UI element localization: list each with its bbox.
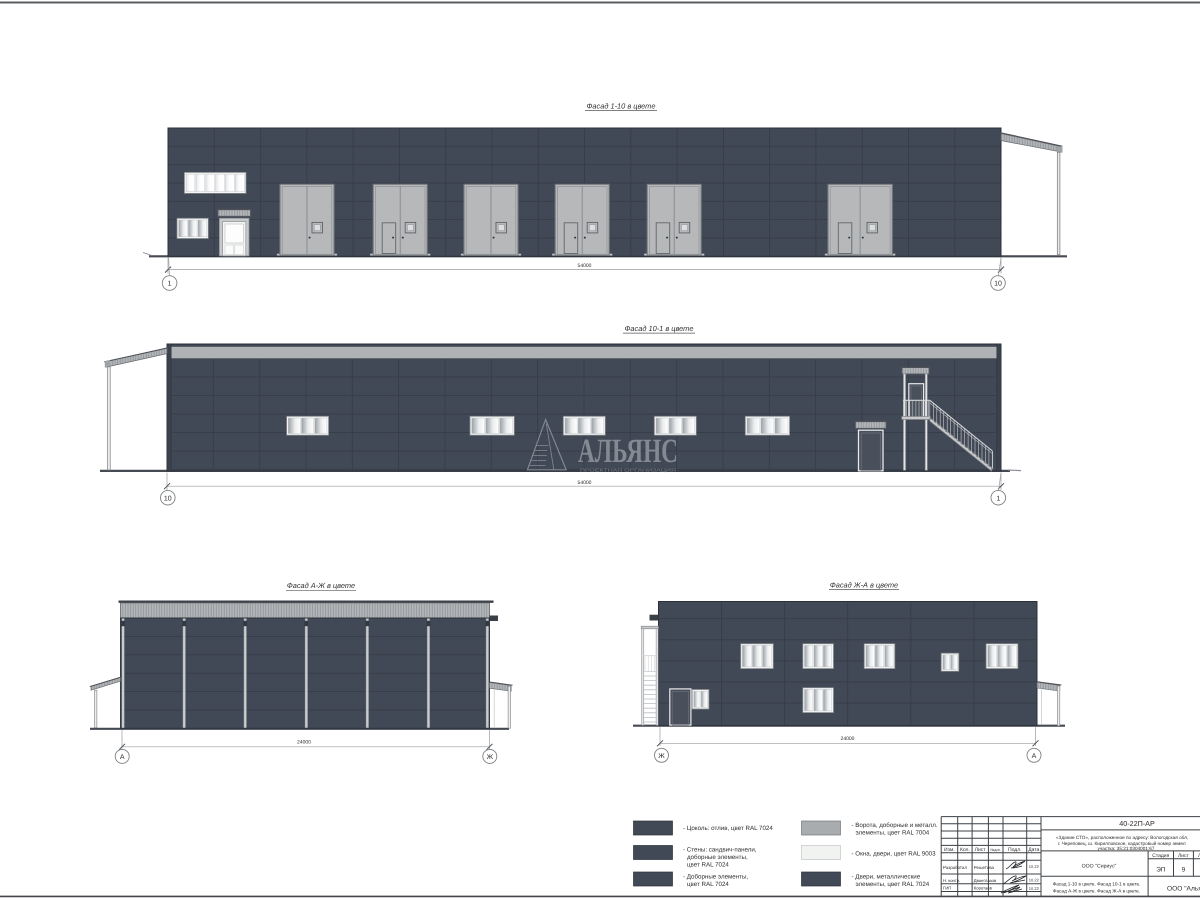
svg-text:Ж: Ж	[658, 753, 665, 760]
svg-text:Фасад А-Ж в цвете. Фасад Ж-А в: Фасад А-Ж в цвете. Фасад Ж-А в цвете.	[1053, 888, 1140, 893]
svg-text:ГИП: ГИП	[943, 886, 951, 891]
svg-text:«Здание СТО», расположенное по: «Здание СТО», расположенное по адресу: В…	[1056, 835, 1188, 840]
svg-text:54000: 54000	[578, 263, 592, 269]
svg-text:элементы, цвет RAL 7024: элементы, цвет RAL 7024	[856, 881, 930, 888]
svg-text:Фасад А-Ж в цвете: Фасад А-Ж в цвете	[287, 581, 355, 590]
svg-text:Решетова: Решетова	[974, 865, 995, 870]
svg-text:элементы, цвет RAL 7004: элементы, цвет RAL 7004	[856, 830, 930, 837]
svg-text:40-22П-АР: 40-22П-АР	[1119, 819, 1155, 828]
svg-text:доборные элементы,: доборные элементы,	[687, 854, 748, 861]
svg-text:- Окна, двери, цвет RAL 9003: - Окна, двери, цвет RAL 9003	[852, 851, 937, 858]
svg-text:- Двери, металлические: - Двери, металлические	[852, 874, 921, 881]
svg-text:Двоеглазов: Двоеглазов	[974, 878, 997, 883]
svg-text:24000: 24000	[841, 736, 855, 742]
svg-text:Лист: Лист	[975, 847, 987, 853]
svg-text:ПРОЕКТНАЯ ОРГАНИЗАЦИЯ: ПРОЕКТНАЯ ОРГАНИЗАЦИЯ	[580, 468, 676, 473]
svg-text:10: 10	[164, 495, 172, 502]
svg-text:1: 1	[996, 495, 1000, 502]
svg-text:Фасад 10-1 в цвете: Фасад 10-1 в цвете	[625, 324, 694, 333]
svg-text:Кол.: Кол.	[960, 847, 970, 853]
svg-text:ООО "Сириус": ООО "Сириус"	[1082, 864, 1117, 870]
svg-text:- Цоколь: отлив, цвет RAL 7024: - Цоколь: отлив, цвет RAL 7024	[683, 825, 773, 832]
svg-text:Лист: Лист	[1178, 853, 1190, 859]
svg-text:54000: 54000	[578, 480, 592, 486]
svg-text:А: А	[1032, 753, 1037, 760]
svg-text:Дата: Дата	[1028, 847, 1039, 853]
svg-text:Стадия: Стадия	[1152, 853, 1169, 859]
svg-text:- Ворота, доборные и металл.: - Ворота, доборные и металл.	[852, 822, 938, 829]
svg-text:Н. контр.: Н. контр.	[943, 878, 960, 883]
svg-text:10.22: 10.22	[1029, 877, 1040, 882]
svg-text:24000: 24000	[297, 739, 311, 745]
svg-text:цвет RAL 7024: цвет RAL 7024	[687, 881, 729, 888]
svg-text:Коротаев: Коротаев	[974, 886, 993, 891]
svg-text:Ж: Ж	[487, 754, 494, 761]
svg-text:10.22: 10.22	[1029, 886, 1040, 891]
svg-text:Фасад Ж-А в цвете: Фасад Ж-А в цвете	[830, 580, 898, 589]
svg-text:Изм.: Изм.	[944, 847, 955, 853]
svg-text:АЛЬЯНС: АЛЬЯНС	[578, 433, 678, 470]
svg-text:ООО "Альянс": ООО "Альянс"	[1167, 885, 1200, 892]
svg-text:- Стены: сандвич-панели,: - Стены: сандвич-панели,	[683, 847, 757, 854]
svg-text:- Доборные элементы,: - Доборные элементы,	[683, 874, 748, 881]
svg-text:9: 9	[1182, 867, 1186, 874]
svg-text:10.22: 10.22	[1029, 864, 1040, 869]
svg-text:цвет RAL 7024: цвет RAL 7024	[687, 862, 729, 869]
svg-text:Подл.: Подл.	[1008, 847, 1022, 853]
svg-text:1: 1	[168, 281, 172, 288]
svg-text:Разработал: Разработал	[943, 865, 967, 870]
svg-text:Фасад 1-10 в цвете: Фасад 1-10 в цвете	[587, 101, 656, 110]
svg-text:участка: 35:21:0304001:67: участка: 35:21:0304001:67	[1097, 846, 1154, 851]
svg-text:ЭП: ЭП	[1156, 867, 1166, 874]
svg-text:А: А	[120, 754, 125, 761]
svg-text:№док.: №док.	[990, 848, 1001, 852]
svg-text:Фасад 1-10 в цвете. Фасад 10-1: Фасад 1-10 в цвете. Фасад 10-1 в цвете.	[1053, 881, 1141, 886]
svg-text:10: 10	[994, 281, 1002, 288]
